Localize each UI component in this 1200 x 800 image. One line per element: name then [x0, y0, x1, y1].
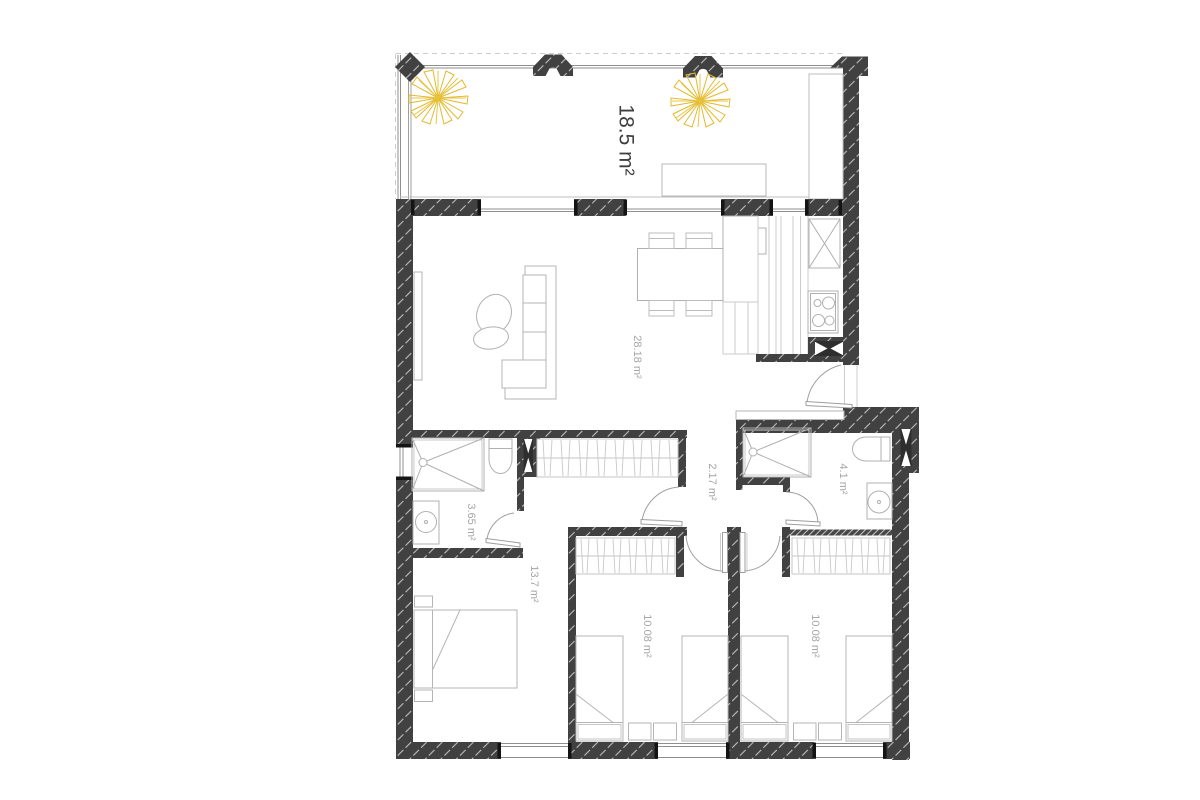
svg-text:10.08 m²: 10.08 m² [809, 614, 821, 658]
svg-text:3.65 m²: 3.65 m² [465, 503, 477, 541]
svg-text:13.7 m²: 13.7 m² [528, 565, 540, 603]
svg-text:4.1 m²: 4.1 m² [837, 463, 849, 495]
svg-text:10.08 m²: 10.08 m² [641, 614, 653, 658]
svg-text:28.18 m²: 28.18 m² [631, 335, 643, 379]
svg-text:2.17 m²: 2.17 m² [706, 463, 718, 501]
svg-text:18.5 m²: 18.5 m² [615, 104, 638, 175]
